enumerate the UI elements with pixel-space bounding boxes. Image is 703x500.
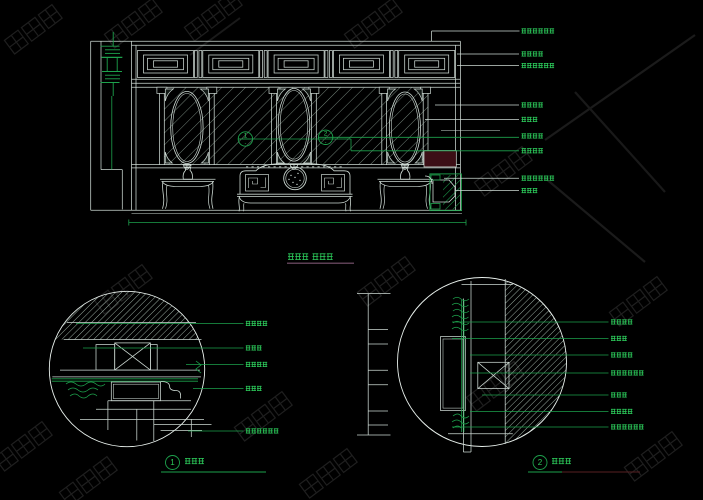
svg-text:1: 1 (244, 132, 248, 139)
svg-text:1: 1 (170, 458, 175, 467)
svg-text:2: 2 (324, 131, 328, 138)
svg-text:2: 2 (538, 458, 543, 467)
